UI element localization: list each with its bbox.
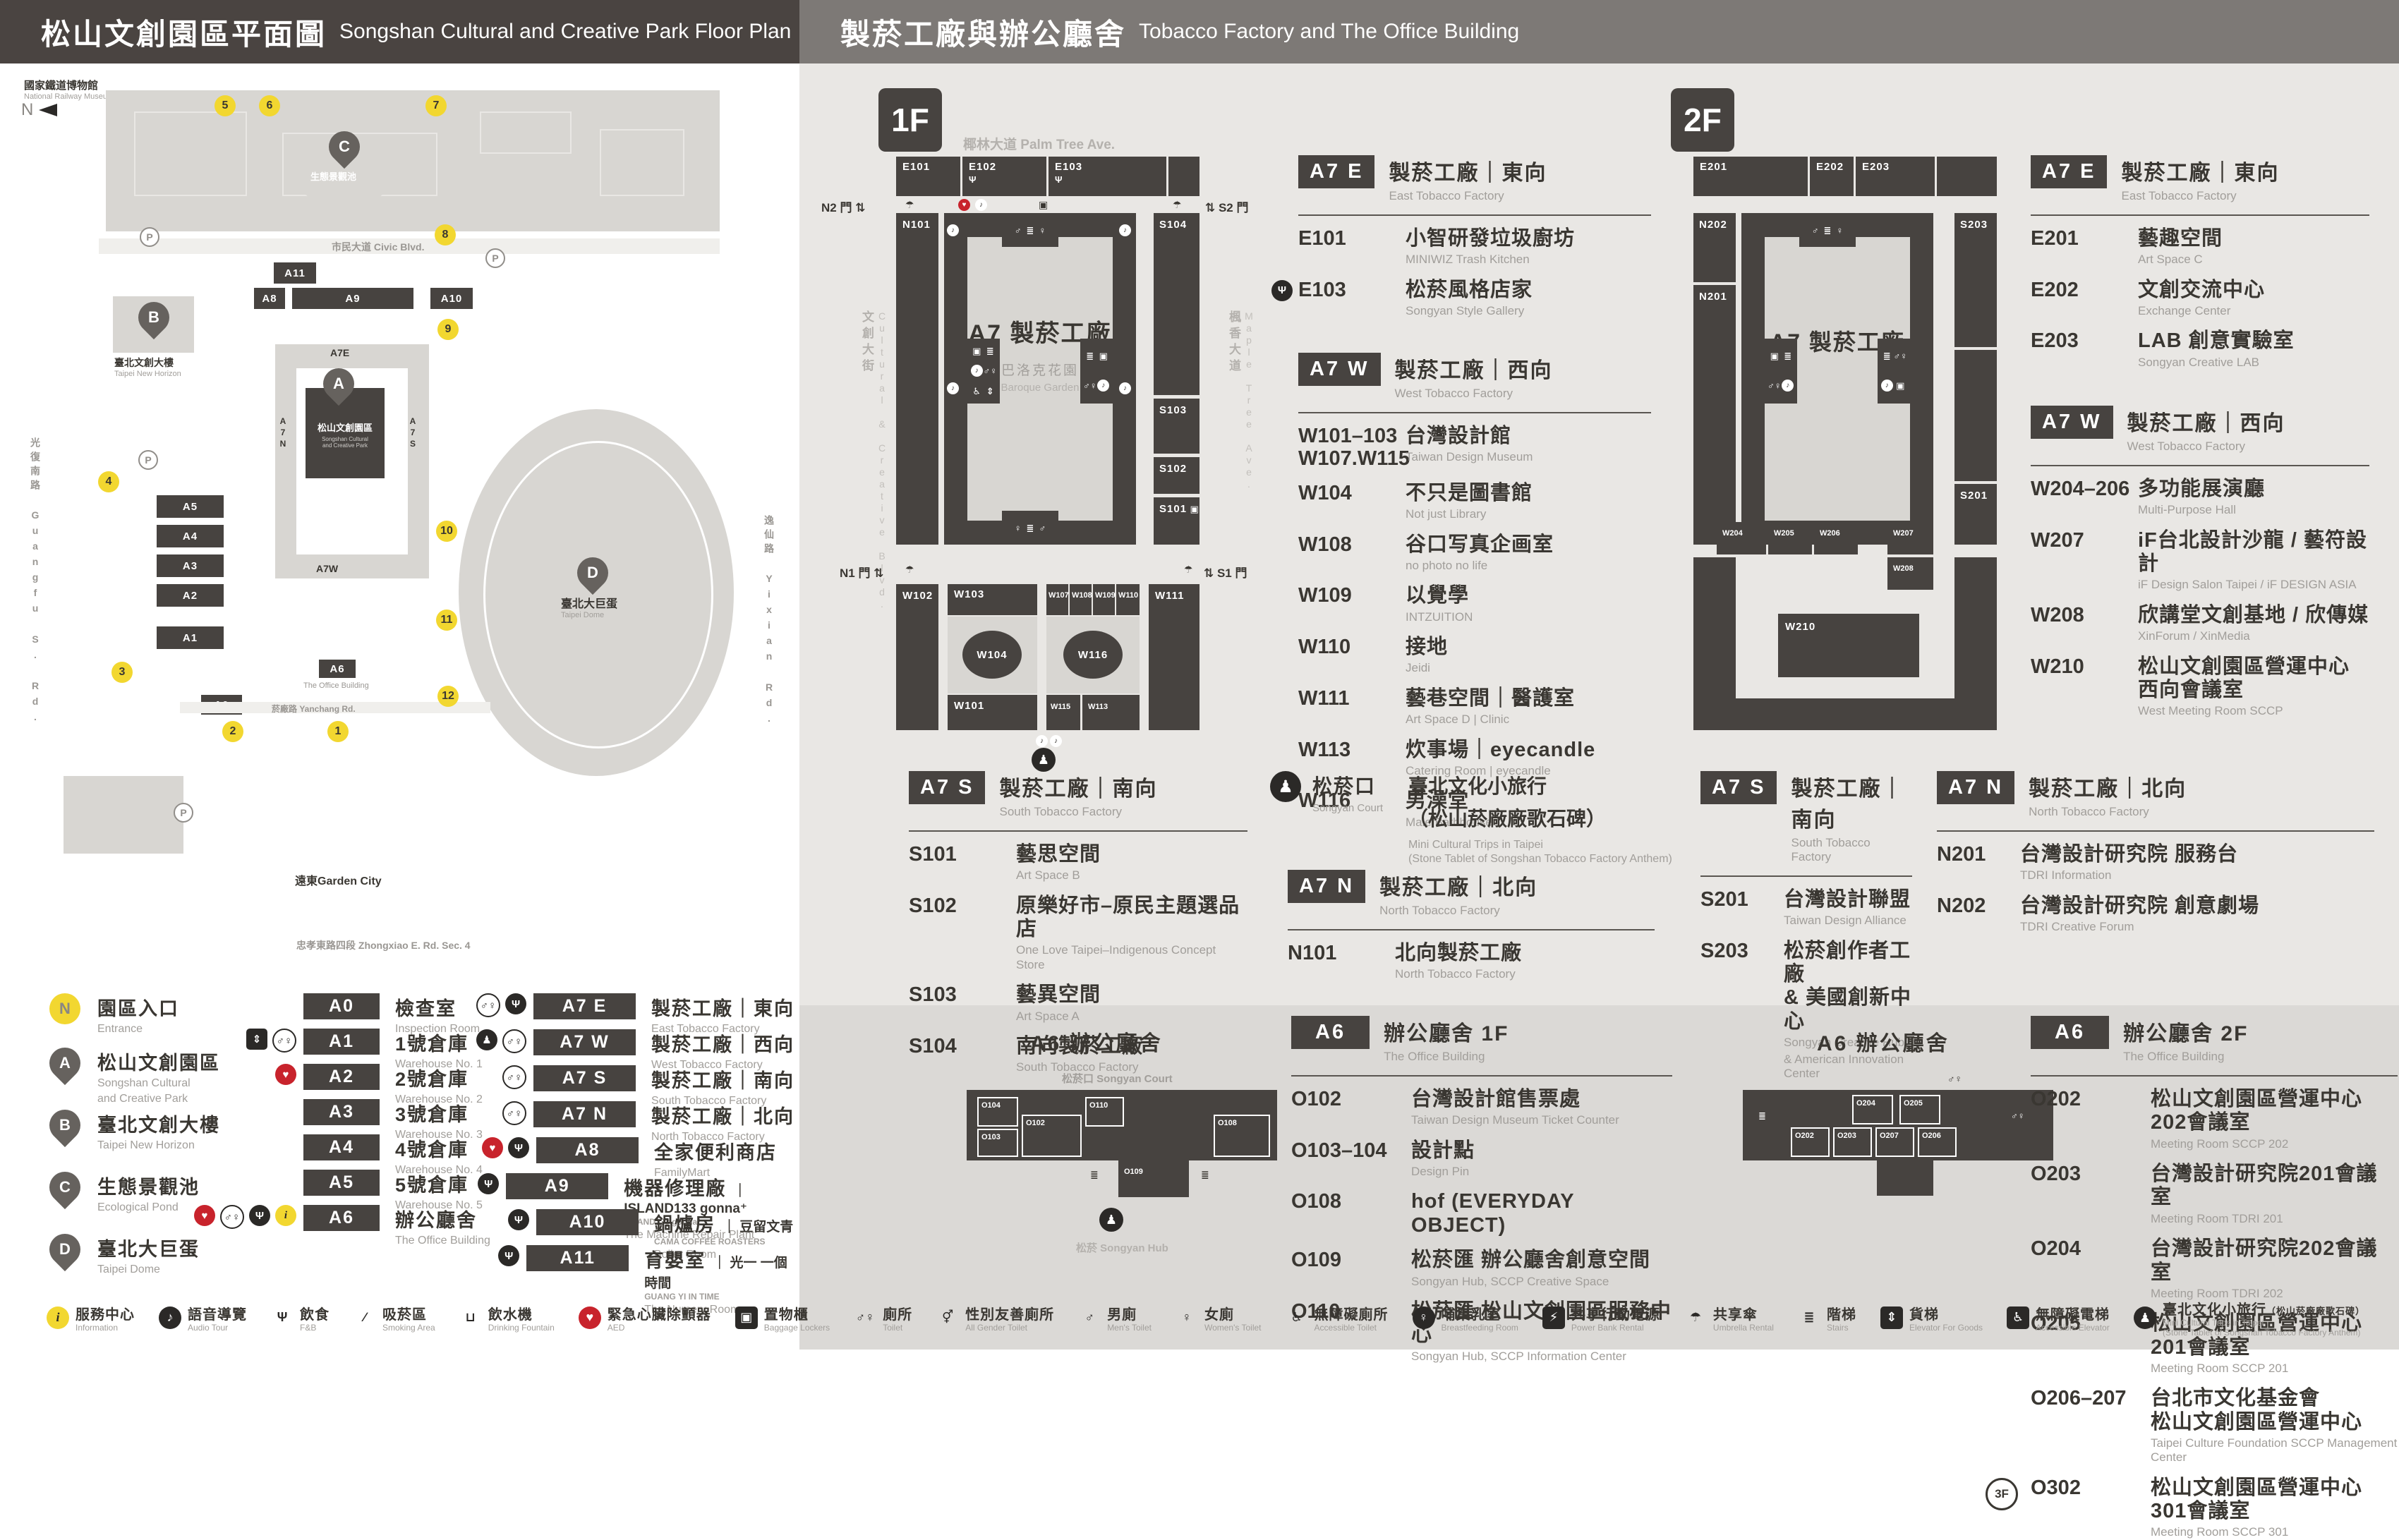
factory-badge: A11	[526, 1245, 629, 1271]
room-row: E201 藝趣空間Art Space C	[2031, 227, 2369, 267]
strip-item: ♿ 無障礙電梯 Accessible Elevator	[2007, 1303, 2110, 1333]
block-a9[interactable]: A9	[292, 288, 413, 309]
strip-item: ⊔ 飲水機 Drinking Fountain	[459, 1303, 555, 1333]
aed-icon: ♥	[579, 1306, 601, 1329]
room-e202: E202	[1810, 157, 1854, 196]
room-o205: O205	[1904, 1099, 1923, 1108]
legend-pin-row: C 生態景觀池Ecological Pond	[49, 1172, 200, 1216]
womens-icon: ♀	[1015, 523, 1022, 533]
gate-10[interactable]: 10	[436, 521, 457, 542]
strip-item: ⚥ 性別友善廁所 All Gender Toilet	[936, 1303, 1054, 1333]
factory-badge: A10	[536, 1209, 639, 1235]
section-badge: A7 S	[1700, 771, 1777, 804]
audio-tour-icon: ♪	[947, 224, 959, 236]
room-s102: S102	[1154, 457, 1199, 494]
section-a7e-1f: A7 E 製菸工廠｜東向East Tobacco Factory E101 小智…	[1298, 155, 1651, 318]
strip-item: ♂ 男廁 Men's Toilet	[1078, 1303, 1152, 1333]
north-arrow-icon	[39, 104, 57, 116]
block-a4[interactable]: A4	[157, 525, 224, 547]
section-a7w-2f: A7 W 製菸工廠｜西向West Tobacco Factory W204–20…	[2031, 406, 2369, 719]
audio-tour-icon: ♪	[1036, 735, 1048, 747]
elevator-icon: ⇕	[246, 1029, 267, 1050]
fnb-icon: Ψ	[1271, 280, 1293, 301]
locker-icon: ▣	[1896, 381, 1904, 390]
north-entrance: ♂ ≣ ♀	[1002, 213, 1058, 247]
room-row: O108 hof (EVERYDAY OBJECT)	[1291, 1190, 1672, 1237]
gate-2[interactable]: 2	[222, 721, 243, 742]
audio-tour-icon: ♪	[975, 199, 987, 211]
gate-n2: N2 門 ⇅	[821, 198, 865, 215]
room-w109: W109	[1093, 584, 1115, 615]
room-o109: O109	[1118, 1160, 1189, 1197]
room-o202: O202	[1795, 1132, 1814, 1140]
fnb-icon: Ψ	[505, 993, 526, 1014]
street-inner-label: 菸廠路 Yanchang Rd.	[272, 703, 356, 715]
room-w108: W108	[1070, 584, 1092, 615]
legend-pin-row: D 臺北大巨蛋Taipei Dome	[49, 1234, 200, 1278]
room-n101: N101	[896, 213, 938, 545]
dome-label: 臺北大巨蛋 Taipei Dome	[561, 594, 617, 619]
audio-tour-icon: ♪	[1119, 224, 1131, 236]
floor-plan-2f[interactable]: E201 E202 E203 N202 N201 ♂ ≣ ♀ A7 製菸工廠 ▣…	[1616, 134, 2067, 762]
street-left-label: 光復南路 Guangfu S. Rd.	[28, 437, 42, 727]
audio-tour-icon: ♪	[1119, 382, 1131, 394]
audio-tour-icon: ♪	[1097, 380, 1109, 392]
block-a2[interactable]: A2	[157, 584, 224, 607]
stairs-icon: ≣	[986, 346, 994, 356]
room-row: W111 藝巷空間｜醫護室Art Space D | Clinic	[1298, 687, 1651, 727]
gate-s2: ⇅ S2 門	[1205, 198, 1249, 215]
toilet-icon: ♂♀	[1083, 381, 1097, 390]
room-o108: O108	[1218, 1119, 1237, 1127]
room-n201: N201	[1693, 285, 1736, 545]
songyan-court-icon: ♟	[1099, 1208, 1123, 1232]
section-badge: A7 W	[2031, 406, 2113, 439]
strip-item: ⚡ 共享行動電源 Power Bank Rental	[1542, 1303, 1660, 1333]
umbrella-icon: ☂	[1684, 1306, 1707, 1329]
strip-item: ♀ 哺集乳室 Breastfeeding Room	[1413, 1303, 1518, 1333]
building-badge: A1	[303, 1029, 380, 1055]
stairs-icon: ≣	[1027, 523, 1034, 533]
womens-icon: ♀	[1039, 226, 1046, 235]
toilet-icon: ♂♀	[1894, 351, 1908, 360]
label-a7w: A7W	[316, 563, 338, 574]
goods-elevator-icon: ⇕	[986, 387, 994, 396]
room-row: W210 松山文創園區營運中心西向會議室West Meeting Room SC…	[2031, 655, 2369, 719]
floor-3f-badge: 3F	[1986, 1478, 2018, 1510]
section-badge: A7 E	[2031, 155, 2107, 188]
fnb-icon: Ψ	[498, 1245, 519, 1266]
stairs-icon: ≣	[1758, 1111, 1766, 1120]
strip-item: ☂ 共享傘 Umbrella Rental	[1684, 1303, 1774, 1333]
strip-item: ≣ 階梯 Stairs	[1798, 1303, 1856, 1333]
toilet-icon: ♂♀	[502, 1065, 526, 1089]
block-a5[interactable]: A5	[157, 495, 224, 518]
room-s203: S203	[1954, 213, 1997, 347]
room-o207: O207	[1880, 1132, 1899, 1140]
block-a6[interactable]: A6	[319, 660, 356, 678]
taipei-dome	[459, 409, 734, 776]
accessible-toilet-icon: ♿	[1286, 1306, 1308, 1329]
locker-icon: ▣	[972, 346, 981, 356]
stairs-icon: ≣	[1090, 1170, 1099, 1180]
parking-icon: P	[138, 450, 158, 470]
room-row: O102 台灣設計館售票處Taiwan Design Museum Ticket…	[1291, 1088, 1672, 1128]
room-w104: W104	[962, 631, 1022, 679]
section-a7n-1f: A7 N 製菸工廠｜北向North Tobacco Factory N101 北…	[1288, 870, 1655, 982]
audio-tour-icon: ♪	[971, 365, 983, 377]
entrance-marker: N	[49, 993, 80, 1024]
room-w210: W210	[1778, 614, 1919, 677]
room-row: O202 松山文創園區營運中心202會議室Meeting Room SCCP 2…	[2031, 1088, 2398, 1151]
toilet-icon: ♂♀	[220, 1205, 244, 1229]
office-2f-plan-title: A6 辦公廳舍	[1817, 1026, 1950, 1057]
museum-label: 國家鐵道博物館 National Railway Museum	[24, 78, 114, 101]
room-e203: E203	[1856, 157, 1935, 196]
room-w204: W204	[1717, 522, 1766, 554]
building-badge: A3	[303, 1099, 380, 1125]
womens-icon: ♀	[1836, 226, 1843, 235]
toilet-icon: ♂♀	[854, 1306, 876, 1329]
office-1f-plan-title: A6 辦公廳舍	[1030, 1026, 1163, 1057]
pin-icon: A	[43, 1041, 87, 1085]
room-e102: E102Ψ	[962, 157, 1046, 196]
room-w107: W107	[1046, 584, 1068, 615]
power-bank-icon: ⚡	[1542, 1306, 1565, 1329]
room-row: S101 藝思空間Art Space B	[909, 843, 1247, 883]
building-badge: A4	[303, 1134, 380, 1160]
room-o103: O103	[981, 1133, 1001, 1141]
room-w115: W115	[1046, 695, 1080, 730]
block-a8[interactable]: A8	[254, 288, 285, 309]
gate-n1: N1 門 ⇅	[840, 563, 883, 581]
umbrella-icon: ☂	[1184, 564, 1193, 574]
audio-tour-icon: ♪	[947, 382, 959, 394]
room-w206: W206	[1814, 522, 1858, 554]
legend-pin-row: A 松山文創園區Songshan Culturaland Creative Pa…	[49, 1048, 220, 1106]
gate-3[interactable]: 3	[111, 662, 133, 683]
audio-tour-icon: ♪	[159, 1306, 181, 1329]
stairs-icon: ≣	[1086, 351, 1094, 360]
room-row: N201 台灣設計研究院 服務台TDRI Information	[1937, 843, 2374, 883]
strip-item: ▣ 置物櫃 Baggage Lockers	[735, 1303, 830, 1333]
songyan-court-label: 松菸口 Songyan Court	[1062, 1071, 1173, 1086]
room-row: Ψ E103 松菸風格店家Songyan Style Gallery	[1298, 279, 1651, 319]
aed-icon: ♥	[482, 1137, 503, 1158]
room-o204: O204	[1856, 1099, 1875, 1108]
mens-icon: ♂	[1015, 226, 1022, 235]
north-label: N	[21, 100, 33, 120]
room-row: E202 文創交流中心Exchange Center	[2031, 279, 2369, 319]
toilet-icon: ♂♀	[502, 1029, 526, 1053]
room-w101: W101	[948, 695, 1037, 730]
building-badge: A0	[303, 993, 380, 1019]
aed-icon: ♥	[275, 1064, 296, 1085]
block-a10[interactable]: A10	[430, 288, 473, 309]
office-plan-2f[interactable]: A6 辦公廳舍 ♂♀ O204 O205 O202 O203 O207 O206…	[1715, 1016, 2081, 1284]
toilet-icon: ♂♀	[272, 1029, 296, 1053]
room-w103: W103	[948, 584, 1037, 615]
gate-8[interactable]: 8	[435, 224, 456, 245]
street-top-label: 市民大道 Civic Blvd.	[332, 240, 424, 254]
locker-icon: ▣	[735, 1306, 758, 1329]
information-icon: i	[47, 1306, 69, 1329]
toilet-icon: ♂♀	[2011, 1111, 2025, 1120]
room-row: E203 LAB 創意實驗室Songyan Creative LAB	[2031, 329, 2369, 370]
room-row: E101 小智研發垃圾廚坊MINIWIZ Trash Kitchen	[1298, 227, 1651, 267]
smoking-icon: ∕	[353, 1306, 376, 1329]
stairs-icon: ≣	[1883, 351, 1891, 360]
gate-6[interactable]: 6	[259, 95, 280, 116]
mini-trip-icon: ♟	[2134, 1306, 2156, 1329]
all-gender-icon: ⚥	[936, 1306, 959, 1329]
toilet-icon: ♂♀	[1947, 1074, 1962, 1084]
west-service-core: ▣ ≣ ♪ ♂♀ ♿ ⇕	[967, 339, 1000, 404]
room-row: O206–207 台北市文化基金會松山文創園區營運中心Taipei Cultur…	[2031, 1387, 2398, 1465]
room-row: W108 谷口写真企画室no photo no life	[1298, 533, 1651, 574]
songyan-court-note: ♟ 松菸口 Songyan Court 臺北文化小旅行 （松山菸廠廠歌石碑） M…	[1270, 771, 1672, 866]
factory-badge: A7 W	[533, 1029, 636, 1055]
room-row: W104 不只是圖書館Not just Library	[1298, 482, 1651, 522]
north-stairs: ♂ ≣ ♀	[1799, 213, 1856, 247]
person-icon: ♟	[476, 1029, 497, 1050]
room-row: 3F O302 松山文創園區營運中心301會議室Meeting Room SCC…	[2031, 1477, 2398, 1540]
breastfeeding-icon: ♀	[1413, 1306, 1435, 1329]
strip-item: ⇕ 貨梯 Elevator For Goods	[1880, 1303, 1983, 1333]
room-s201: S201	[1954, 484, 1997, 545]
strip-item: ∕ 吸菸區 Smoking Area	[353, 1303, 435, 1333]
gate-11[interactable]: 11	[436, 610, 457, 631]
room-row: O109 松菸匯 辦公廳舍創意空間Songyan Hub, SCCP Creat…	[1291, 1249, 1672, 1289]
office-building-label: The Office Building	[303, 681, 369, 690]
block-a11[interactable]: A11	[274, 262, 316, 284]
garden-city-label: 遠東Garden City	[295, 871, 382, 888]
north-arrow: N	[21, 100, 57, 120]
building-badge: A2	[303, 1064, 380, 1090]
garden-city-block	[64, 776, 183, 854]
aed-icon: ♥	[958, 199, 970, 211]
songyan-court-icon: ♟	[1032, 748, 1056, 772]
strip-item: ♥ 緊急心臟除顫器 AED	[579, 1303, 711, 1333]
street-right-label: 逸仙路 Yixian Rd.	[762, 515, 776, 728]
room-w208: W208	[1887, 557, 1933, 590]
room-e101: E101	[896, 157, 960, 196]
room-s103: S103	[1154, 399, 1199, 454]
room-o110: O110	[1089, 1101, 1108, 1110]
gate-12[interactable]: 12	[437, 686, 459, 707]
room-o206: O206	[1922, 1132, 1941, 1140]
gate-5[interactable]: 5	[214, 95, 236, 116]
west-service-core-2f: ▣ ≣ ♂♀ ♪	[1765, 339, 1797, 404]
section-badge: A7 W	[1298, 353, 1381, 386]
street-bottom-label: 忠孝東路四段 Zhongxiao E. Rd. Sec. 4	[296, 938, 471, 952]
information-icon: i	[275, 1205, 296, 1226]
pin-icon: D	[43, 1227, 87, 1271]
fnb-icon: Ψ	[1055, 174, 1063, 185]
room-row: W207 iF台北設計沙龍 / 藝符設計iF Design Salon Taip…	[2031, 529, 2369, 593]
gate-s1: ⇅ S1 門	[1204, 563, 1247, 581]
factory-badge: A9	[506, 1173, 608, 1199]
palm-tree-ave-label: 椰林大道 Palm Tree Ave.	[963, 134, 1115, 153]
section-a7e-2f: A7 E 製菸工廠｜東向East Tobacco Factory E201 藝趣…	[2031, 155, 2369, 370]
mens-icon: ♂	[1078, 1306, 1101, 1329]
toilet-icon: ♂♀	[984, 366, 998, 375]
room-w102: W102	[896, 584, 938, 730]
eslite-label: 臺北文創大樓 Taipei New Horizon	[114, 356, 181, 378]
toilet-icon: ♂♀	[476, 993, 500, 1017]
fnb-icon: Ψ	[249, 1205, 270, 1226]
legend-entrance: N 園區入口Entrance	[49, 993, 179, 1036]
south-entrance: ♀ ≣ ♂	[1002, 511, 1058, 545]
room-row: W110 接地Jeidi	[1298, 636, 1651, 676]
section-badge: A7 S	[909, 771, 985, 804]
cultural-blvd-label: 文創大街	[858, 310, 876, 375]
park-center-block: 松山文創園區 Songshan Cultural and Creative Pa…	[306, 388, 385, 478]
toilet-icon: ♂♀	[502, 1101, 526, 1125]
label-a7e: A7E	[330, 347, 349, 358]
room-o102: O102	[1026, 1119, 1045, 1127]
room-w113: W113	[1082, 695, 1140, 730]
accessible-elevator-icon: ♿	[2007, 1306, 2029, 1329]
gate-1[interactable]: 1	[327, 721, 349, 742]
parking-icon: P	[485, 248, 505, 268]
label-a7n: A7N	[278, 416, 288, 450]
room-e103: E103Ψ	[1049, 157, 1166, 196]
umbrella-icon: ☂	[905, 200, 914, 210]
room-w207: W207	[1887, 522, 1933, 554]
east-service-core-2f: ≣ ♂♀ ♪ ▣	[1878, 339, 1910, 404]
locker-icon: ▣	[1190, 504, 1199, 514]
section-badge: A7 N	[1937, 771, 2014, 804]
room-n202: N202	[1693, 213, 1736, 282]
room-row: W204–206 多功能展演廳Multi-Purpose Hall	[2031, 478, 2369, 518]
strip-item: ♀ 女廁 Women's Toilet	[1176, 1303, 1262, 1333]
block-a1[interactable]: A1	[157, 626, 224, 649]
room-s101: S101 ▣	[1154, 497, 1199, 545]
east-service-core: ≣ ▣ ♂♀ ♪	[1080, 339, 1113, 404]
room-s104: S104	[1154, 213, 1199, 395]
room-w205: W205	[1768, 522, 1812, 554]
songyan-hub-label: 松菸 Songyan Hub	[1076, 1240, 1168, 1255]
page-title-en: Songshan Cultural and Creative Park Floo…	[339, 20, 791, 44]
railway-museum-area	[106, 90, 720, 231]
room-row: S201 台灣設計聯盟Taiwan Design Alliance	[1700, 888, 1912, 928]
section-badge: A6	[2031, 1016, 2109, 1049]
pin-icon: C	[43, 1165, 87, 1209]
fnb-icon: Ψ	[508, 1209, 529, 1230]
park-overview-map[interactable]: N 國家鐵道博物館 National Railway Museum 市民大道 C…	[0, 63, 799, 981]
block-a3[interactable]: A3	[157, 554, 224, 577]
stairs-icon: ≣	[1824, 226, 1832, 235]
room-row: N202 台灣設計研究院 創意劇場TDRI Creative Forum	[1937, 895, 2374, 935]
factory-badge: A7 N	[533, 1101, 636, 1127]
audio-tour-icon: ♪	[1782, 380, 1794, 392]
section-a6-2f: A6 辦公廳舍 2FThe Office Building O202 松山文創園…	[2031, 1016, 2398, 1540]
mens-icon: ♂	[1812, 226, 1819, 235]
strip-item: ♿ 無障礙廁所 Accessible Toilet	[1286, 1303, 1389, 1333]
locker-icon: ▣	[1770, 351, 1779, 360]
section-a7n-2f: A7 N 製菸工廠｜北向North Tobacco Factory N201 台…	[1937, 771, 2374, 934]
room-row: O203 台灣設計研究院201會議室Meeting Room TDRI 201	[2031, 1163, 2398, 1226]
header-left: 松山文創園區平面圖 Songshan Cultural and Creative…	[0, 0, 799, 63]
womens-icon: ♀	[1176, 1306, 1198, 1329]
section-a7w-1f: A7 W 製菸工廠｜西向West Tobacco Factory W101–10…	[1298, 353, 1651, 830]
office-plan-1f[interactable]: A6 辦公廳舍 松菸口 Songyan Court O104 O103 O102…	[938, 1016, 1305, 1284]
gate-7[interactable]: 7	[425, 95, 447, 116]
legend-pin-row: B 臺北文創大樓Taipei New Horizon	[49, 1110, 220, 1154]
toilet-icon: ♂♀	[1767, 381, 1782, 390]
section-title-zh: 製菸工廠與辦公廳舍	[840, 11, 1126, 54]
section-badge: A7 N	[1288, 870, 1365, 903]
factory-badge: A8	[536, 1137, 639, 1163]
building-badge: A6	[303, 1205, 380, 1231]
floor-plan-1f[interactable]: 椰林大道 Palm Tree Ave. E101 E102Ψ E103Ψ N2 …	[811, 134, 1263, 762]
room-o104: O104	[981, 1101, 1001, 1110]
water-icon: ⊔	[459, 1306, 482, 1329]
room-e201: E201	[1693, 157, 1808, 196]
fnb-icon: Ψ	[271, 1306, 294, 1329]
strip-item: ♟ 臺北文化小旅行（松山菸廠廠歌石碑） Mini Cultural Trips …	[2134, 1298, 2365, 1338]
pond-label: 生態景觀池	[310, 169, 356, 183]
room-o203: O203	[1837, 1132, 1856, 1140]
room-row: S102 原樂好市–原民主題選品店One Love Taipei–Indigen…	[909, 895, 1247, 972]
room-row: W109 以覺學INTZUITION	[1298, 584, 1651, 624]
umbrella-icon: ☂	[905, 564, 914, 574]
room-row: N101 北向製菸工廠North Tobacco Factory	[1288, 942, 1655, 982]
locker-icon: ▣	[1039, 200, 1048, 210]
stairs-icon: ≣	[1798, 1306, 1820, 1329]
fnb-icon: Ψ	[478, 1173, 499, 1194]
gate-9[interactable]: 9	[437, 319, 459, 340]
strip-item: ♂♀ 廁所 Toilet	[854, 1303, 912, 1333]
locker-icon: ▣	[1099, 351, 1108, 360]
room-row: O103–104 設計點Design Pin	[1291, 1139, 1672, 1180]
room-row: W101–103W107.W115 台灣設計館Taiwan Design Mus…	[1298, 425, 1651, 471]
maple-ave-label: 楓香大道	[1225, 310, 1243, 375]
strip-item: ♪ 語音導覽 Audio Tour	[159, 1303, 247, 1333]
label-a7s: A7S	[408, 416, 418, 450]
page-title-zh: 松山文創園區平面圖	[41, 11, 327, 54]
parking-icon: P	[140, 227, 159, 247]
room-row: W208 欣講堂文創基地 / 欣傳媒XinForum / XinMedia	[2031, 604, 2369, 644]
accessible-toilet-icon: ♿	[972, 387, 981, 396]
stairs-icon: ≣	[1201, 1170, 1209, 1180]
section-badge: A6	[1291, 1016, 1370, 1049]
parking-icon: P	[174, 803, 193, 823]
fnb-icon: Ψ	[508, 1137, 529, 1158]
audio-tour-icon: ♪	[1050, 735, 1062, 747]
map-legend: N 園區入口Entrance A 松山文創園區Songshan Cultural…	[0, 981, 799, 1291]
stairs-icon: ≣	[1784, 351, 1791, 360]
room-w116: W116	[1063, 631, 1123, 679]
facility-icon-legend: i 服務中心 Information ♪ 語音導覽 Audio Tour Ψ 飲…	[0, 1290, 2399, 1346]
section-badge: A7 E	[1298, 155, 1374, 188]
room-w111: W111	[1149, 584, 1199, 730]
header-right: 製菸工廠與辦公廳舍 Tobacco Factory and The Office…	[799, 0, 2399, 63]
umbrella-icon: ☂	[1173, 200, 1182, 210]
factory-badge: A7 S	[533, 1065, 636, 1091]
mens-icon: ♂	[1039, 523, 1046, 533]
strip-item: Ψ 飲食 F&B	[271, 1303, 330, 1333]
section-title-en: Tobacco Factory and The Office Building	[1139, 20, 1519, 44]
room-w110: W110	[1116, 584, 1140, 615]
aed-icon: ♥	[194, 1205, 215, 1226]
gate-4[interactable]: 4	[98, 471, 119, 492]
pin-icon: B	[43, 1103, 87, 1147]
stairs-icon: ≣	[1027, 226, 1034, 235]
building-badge: A5	[303, 1170, 380, 1196]
songyan-court-icon: ♟	[1270, 771, 1301, 802]
